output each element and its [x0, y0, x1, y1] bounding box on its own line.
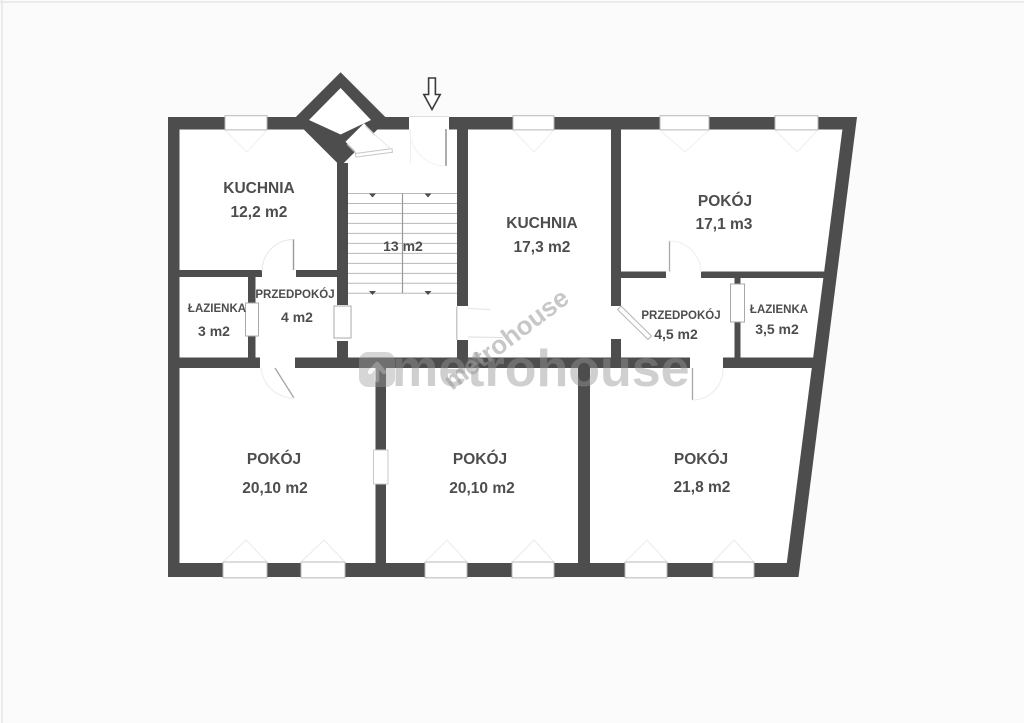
- svg-text:3 m2: 3 m2: [198, 323, 230, 339]
- svg-text:POKÓJ: POKÓJ: [698, 192, 752, 210]
- svg-text:KUCHNIA: KUCHNIA: [223, 180, 294, 197]
- svg-text:13 m2: 13 m2: [383, 238, 423, 254]
- svg-text:PRZEDPOKÓJ: PRZEDPOKÓJ: [255, 288, 334, 301]
- svg-text:12,2 m2: 12,2 m2: [231, 204, 288, 221]
- svg-text:POKÓJ: POKÓJ: [247, 450, 301, 468]
- svg-text:20,10 m2: 20,10 m2: [449, 480, 515, 497]
- svg-text:4,5 m2: 4,5 m2: [654, 326, 698, 342]
- svg-text:21,8 m2: 21,8 m2: [674, 479, 731, 496]
- svg-text:KUCHNIA: KUCHNIA: [506, 215, 577, 232]
- svg-text:ŁAZIENKA: ŁAZIENKA: [750, 304, 808, 316]
- svg-text:ŁAZIENKA: ŁAZIENKA: [188, 303, 246, 315]
- svg-text:20,10 m2: 20,10 m2: [242, 480, 308, 497]
- svg-text:4 m2: 4 m2: [281, 309, 313, 325]
- svg-text:metrohouse: metrohouse: [392, 340, 690, 398]
- svg-text:POKÓJ: POKÓJ: [453, 450, 507, 468]
- svg-text:3,5 m2: 3,5 m2: [755, 321, 799, 337]
- svg-text:17,1 m3: 17,1 m3: [696, 216, 753, 233]
- svg-text:PRZEDPOKÓJ: PRZEDPOKÓJ: [641, 309, 720, 322]
- svg-text:17,3 m2: 17,3 m2: [514, 239, 571, 256]
- svg-text:POKÓJ: POKÓJ: [674, 450, 728, 468]
